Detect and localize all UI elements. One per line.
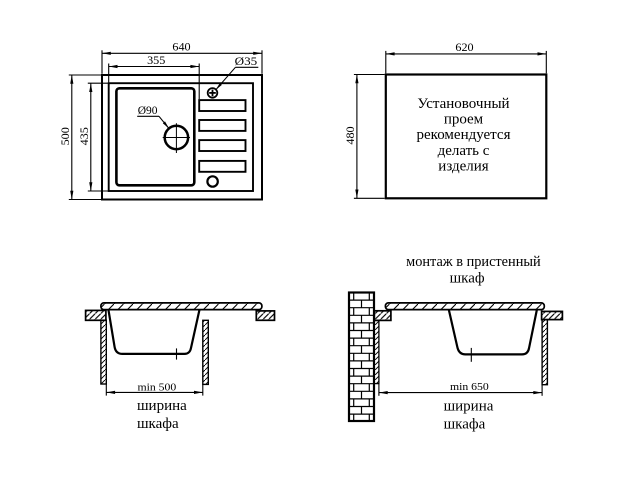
- svg-text:шкаф: шкаф: [450, 271, 485, 287]
- svg-text:500: 500: [60, 127, 72, 145]
- svg-text:min 650: min 650: [450, 381, 489, 393]
- svg-text:Установочный: Установочный: [417, 96, 509, 112]
- svg-text:min 500: min 500: [138, 381, 177, 393]
- svg-text:620: 620: [455, 42, 473, 54]
- svg-text:ширина: ширина: [137, 398, 187, 414]
- svg-text:355: 355: [147, 55, 165, 67]
- svg-text:шкафа: шкафа: [444, 416, 486, 432]
- svg-text:Ø90: Ø90: [138, 105, 158, 117]
- svg-text:делать с: делать с: [438, 143, 490, 159]
- svg-text:монтаж в пристенный: монтаж в пристенный: [406, 254, 541, 270]
- svg-text:ширина: ширина: [444, 398, 494, 414]
- svg-text:проем: проем: [444, 112, 484, 128]
- svg-text:435: 435: [79, 127, 91, 145]
- svg-text:640: 640: [172, 42, 190, 54]
- svg-text:рекомендуется: рекомендуется: [417, 127, 511, 143]
- svg-text:480: 480: [345, 126, 357, 144]
- svg-text:Ø35: Ø35: [235, 56, 258, 68]
- svg-text:изделия: изделия: [438, 159, 488, 175]
- svg-text:шкафа: шкафа: [137, 416, 179, 432]
